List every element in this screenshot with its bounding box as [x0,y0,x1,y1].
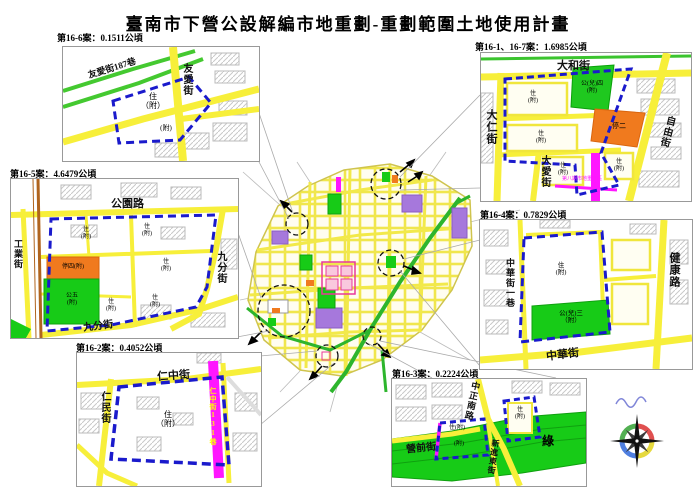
inset-case-16-1-16-7: 大和街 大仁街 自由街 大愛街 住 (附) 住 (附) 住 (附) 住 (附) … [480,52,692,202]
zone-label-zhu: 住 （附） [137,93,169,111]
zone-label-fu: (附) [155,125,177,133]
zone-label-zhu: 住 （附） [151,411,185,429]
zone-label-zhu2: 住 (附) [506,407,534,420]
street-label-jiankang: 健康路 [666,252,682,288]
street-label-renzhong: 仁中街 [156,366,190,384]
compass-rose-icon [610,397,664,468]
zone-label-zhu: 住 (附) [546,262,576,277]
zone-label-zhu2: 住 (附) [527,131,555,144]
street-label-dahe: 大和街 [557,57,590,73]
inset-case-16-5: 公園路 九分街 九分街 工業街 住 (附) 住 (附) 住 (附) 住 (附) … [10,178,239,339]
street-label-yingqian: 營前街 [405,437,436,455]
street-label-daren: 大仁街 [483,109,499,145]
zone-label-zhu3: 住 (附) [549,163,577,176]
zone-label-park3: 公(兒)三 （附） [550,310,592,325]
zone-label-zhu2: 住 (附) [134,224,160,237]
case-label-16-6: 第16-6案：0.1511公頃 [57,31,143,44]
zone-label-zhu1: 住 (附) [519,91,547,104]
street-label-youai: 友愛街 [179,63,194,96]
street-label-zhonghua-lane1: 中華街一巷 [504,258,517,308]
street-label-renmin: 仁民街 [97,391,112,424]
zone-label-park5: 公五 (附) [57,293,87,306]
zone-label-green: 綠 [536,435,560,448]
zone-label-zhu4: 住 (附) [98,299,124,312]
zone-label-district8: 第八期市地重劃區 [547,177,617,183]
zone-label-zhu4: 住 (附) [605,159,633,172]
zone-label-zhu1: 住(附) [442,425,472,432]
street-label-gongyuan: 公園路 [111,195,144,211]
zone-label-zhu5: 住 (附) [142,295,168,308]
street-label-renzhong-lane131: 仁中街131巷 [208,387,218,446]
zone-label-zhu1: 住 (附) [73,227,99,240]
street-label-jiufen-right: 九分街 [213,251,228,284]
zone-label-parking4: 停四(附) [51,264,95,271]
zone-label-fu1: (附) [446,441,472,448]
inset-case-16-4: 中華街一巷 健康路 中華街 住 (附) 公(兒)三 （附） [479,219,693,370]
inset-case-16-3: 中正南路 營前街 新進東街 住(附) (附) 住 (附) 綠 [391,378,587,487]
street-label-gongye: 工業街 [12,239,25,269]
zone-label-zhu3: 住 (附) [153,259,179,272]
zone-label-park4: 公(兒)四 (附) [575,81,609,94]
zone-label-parking2: 停二 [605,123,633,131]
inset-case-16-2: 仁中街 仁民街 仁中街131巷 住 （附） [76,352,262,487]
inset-case-16-6: 友愛街187巷 友愛街 住 （附） (附) [62,46,260,162]
